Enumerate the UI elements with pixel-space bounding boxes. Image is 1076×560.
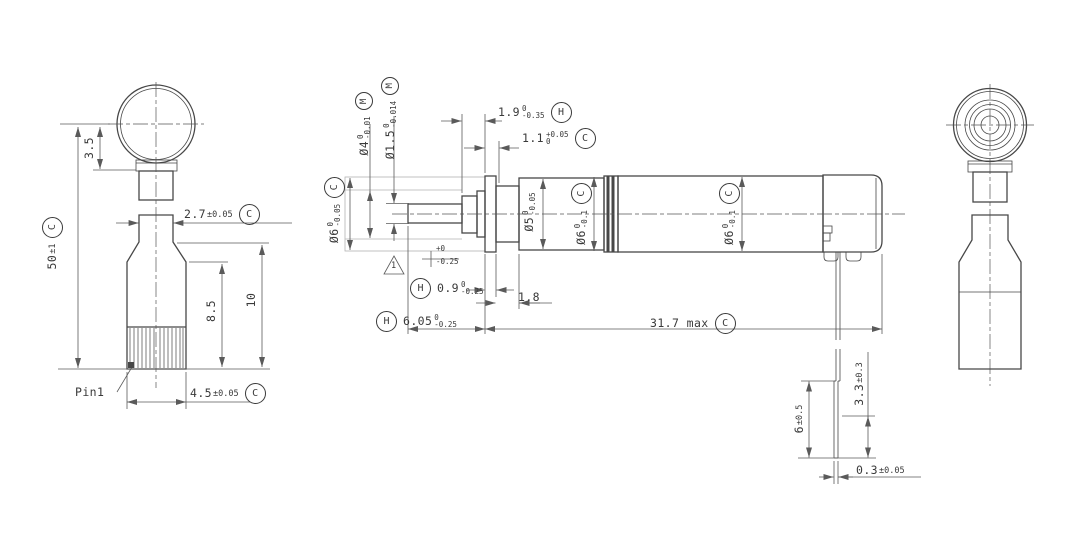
dim-0-9: H 0.9 0-0.25 — [410, 279, 484, 297]
datum-circle-C: C — [245, 383, 266, 404]
dim-dia5: Ø5 0-0.05 — [520, 188, 538, 236]
mount-legs — [824, 252, 861, 261]
dim-2-7: 2.7±0.05 C — [184, 205, 260, 223]
right-end-view-linework — [946, 84, 1034, 386]
drawing-linework — [0, 0, 1076, 560]
dim-1-8: 1.8 — [518, 288, 540, 306]
dim-dia4: Ø4 0-0.01 M — [355, 87, 373, 161]
callout-lower-tol: -0.25 — [436, 257, 459, 266]
datum-circle-C: C — [239, 204, 260, 225]
datum-circle-H: H — [410, 278, 431, 299]
datum-circle-H: H — [551, 102, 572, 123]
pin1-leader — [117, 362, 134, 392]
terminal-tab — [834, 252, 840, 458]
front-view-linework — [345, 114, 921, 484]
dim-1-1: 1.1 +0.050 C — [522, 129, 596, 147]
datum-circle-M: M — [381, 77, 399, 95]
datum-circle-C: C — [571, 183, 592, 204]
dim-dia6-b: Ø6 0-0.1 C — [720, 178, 738, 250]
latch-notch — [823, 226, 832, 241]
dim-6: 6±0.5 — [790, 404, 808, 434]
dim-dia1-5: Ø1.5 0-0.014 M — [381, 74, 399, 162]
dim-3-3: 3.3±0.3 — [850, 362, 868, 406]
dim-4-5: 4.5±0.05 C — [190, 384, 266, 402]
dim-31-7-max: 31.7 max C — [650, 314, 736, 332]
pin-knurl — [130, 328, 183, 368]
dim-1-9: 1.9 0-0.35 H — [498, 103, 572, 121]
datum-circle-C: C — [324, 177, 345, 198]
dim-0-3: 0.3±0.05 — [856, 461, 905, 479]
dim-8-5: 8.5 — [202, 298, 220, 324]
dim-dia6-a: Ø6 0-0.1 C — [572, 178, 590, 250]
datum-circle-C: C — [42, 217, 63, 238]
datum-circle-C: C — [719, 183, 740, 204]
dim-50: 50±1 C — [43, 212, 61, 274]
callout-upper-tol: +0 — [436, 244, 445, 253]
dim-3-5: 3.5 — [80, 135, 98, 161]
pin1-label: Pin1 — [75, 383, 104, 401]
left-view-linework — [58, 82, 292, 409]
dim-10: 10 — [242, 291, 260, 309]
engineering-drawing: 3.5 50±1 C 2.7±0.05 C 8.5 10 4.5±0.05 C … — [0, 0, 1076, 560]
datum-circle-M: M — [355, 92, 373, 110]
datum-circle-H: H — [376, 311, 397, 332]
note-flag-number: 1 — [391, 261, 396, 271]
datum-circle-C: C — [715, 313, 736, 334]
datum-circle-C: C — [575, 128, 596, 149]
dim-dia6-sleeve: Ø6 0-0.05 C — [325, 170, 343, 250]
dim-6-05: H 6.05 0-0.25 — [376, 312, 457, 330]
